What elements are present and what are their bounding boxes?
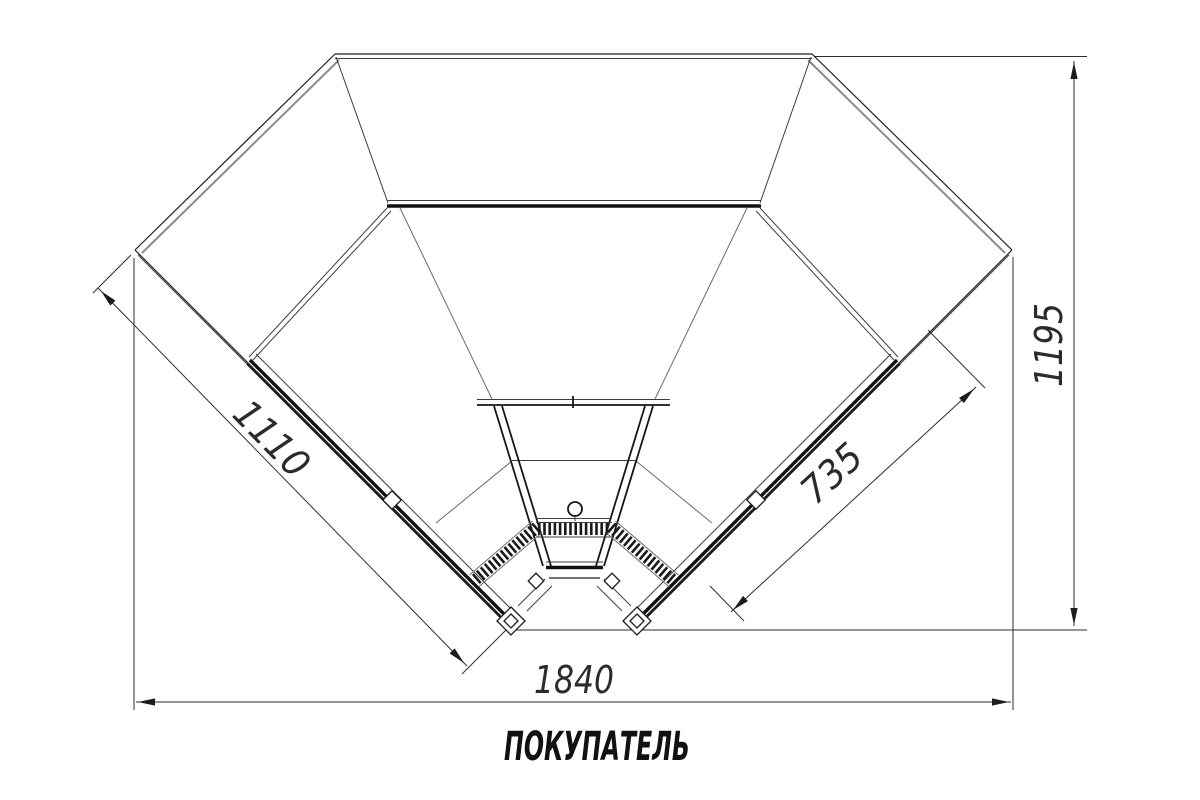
left-hatch-strip [470, 521, 542, 587]
left-side-edge [135, 54, 339, 253]
right-leg [596, 406, 653, 566]
left-front-edge [135, 250, 503, 618]
corner-module [400, 208, 747, 587]
dim-label-1195: 1195 [1027, 303, 1071, 387]
corner-showcase-plan-drawing: 1110 735 1195 1840 ПОКУПАТЕЛЬ [0, 0, 1200, 800]
dim-arrow [138, 698, 155, 705]
dimension-labels: 1110 735 1195 1840 [224, 303, 1071, 702]
top-edge [335, 54, 812, 59]
drain-circle [568, 502, 582, 516]
case-outline [135, 54, 1012, 618]
dim-arrow [1070, 608, 1077, 625]
customer-side-label: ПОКУПАТЕЛЬ [504, 724, 690, 770]
drawing-canvas: 1110 735 1195 1840 ПОКУПАТЕЛЬ [0, 0, 1200, 800]
dim-label-1840: 1840 [534, 658, 614, 702]
dim-arrow [1070, 62, 1077, 79]
right-front-edge [644, 250, 1012, 618]
left-leg [494, 406, 551, 566]
right-glass-band [637, 354, 900, 618]
left-wing-end-wall [249, 208, 391, 360]
dim-arrow [992, 698, 1009, 705]
dim-label-735: 735 [792, 434, 872, 512]
ventilation-grille [536, 519, 612, 538]
canopy [336, 57, 811, 206]
left-glass-band [247, 354, 510, 618]
left-corner-tab [528, 573, 544, 589]
dim-1195 [1070, 61, 1077, 626]
glass-mullions [383, 491, 765, 589]
feet [497, 607, 651, 635]
right-wing-end-wall [756, 208, 898, 360]
right-corner-tab [604, 573, 620, 589]
right-side-edge [808, 54, 1012, 253]
dim-label-1110: 1110 [224, 391, 318, 486]
dim-735 [731, 386, 977, 612]
